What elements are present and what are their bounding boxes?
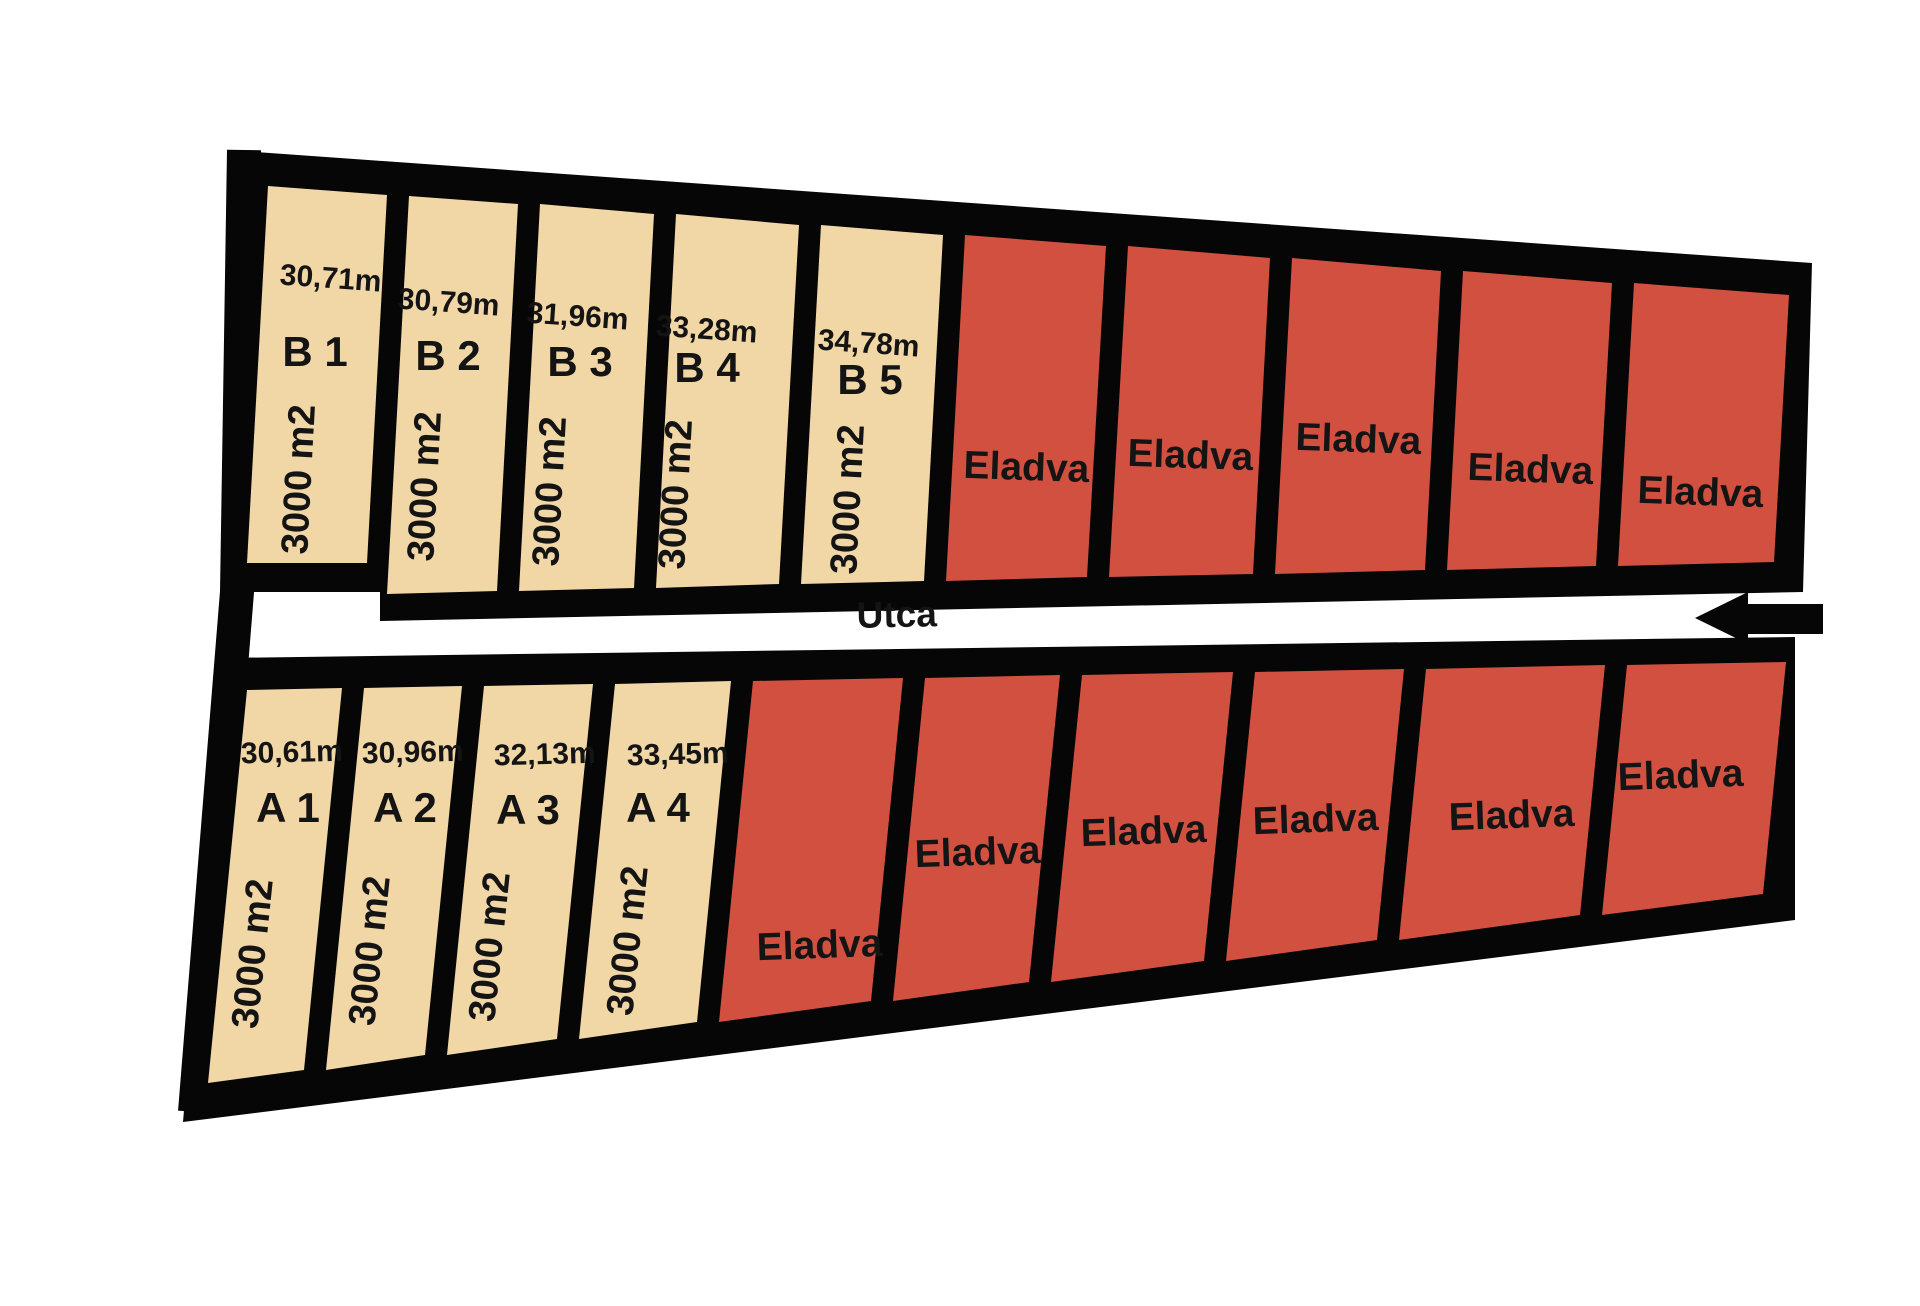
plot-id-label: B 3 xyxy=(547,338,612,385)
plot-width-label: 33,45m xyxy=(626,737,729,773)
street-label: Utca xyxy=(856,593,937,636)
sold-plot-sold-b-4 xyxy=(1447,271,1612,570)
plot-sold-label: Eladva xyxy=(1617,752,1744,799)
plot-area-label: 3000 m2 xyxy=(651,418,701,570)
plot-id-label: B 5 xyxy=(837,356,902,403)
plot-sold-label: Eladva xyxy=(914,829,1041,876)
plot-sold-label: Eladva xyxy=(1637,469,1764,516)
plot-id-label: B 1 xyxy=(282,328,347,375)
plot-sold-label: Eladva xyxy=(963,444,1090,491)
plot-id-label: B 2 xyxy=(415,332,480,379)
plot-area-label: 3000 m2 xyxy=(274,403,324,555)
plot-id-label: A 4 xyxy=(626,784,690,831)
plot-sold-label: Eladva xyxy=(1080,808,1207,855)
plot-sold-label: Eladva xyxy=(1295,416,1422,463)
plot-area-label: 3000 m2 xyxy=(400,410,450,562)
left-arrow-icon xyxy=(1695,592,1823,644)
plot-id-label: A 3 xyxy=(496,786,560,833)
plot-area-label: 3000 m2 xyxy=(525,415,575,567)
plot-id-label: A 2 xyxy=(373,784,437,831)
sold-plot-sold-b-5 xyxy=(1618,283,1789,566)
plot-width-label: 32,13m xyxy=(493,737,596,773)
plot-width-label: 30,96m xyxy=(361,735,464,771)
plot-sold-label: Eladva xyxy=(1252,796,1379,843)
plot-sold-label: Eladva xyxy=(1448,792,1575,839)
land-plot-map: 30,71mB 13000 m230,79mB 23000 m231,96mB … xyxy=(0,0,1920,1306)
plot-sold-label: Eladva xyxy=(1127,432,1254,479)
plot-area-label: 3000 m2 xyxy=(823,423,873,575)
plot-width-label: 30,61m xyxy=(240,735,343,771)
plot-b5 xyxy=(801,225,943,584)
plot-id-label: A 1 xyxy=(256,784,320,831)
plot-sold-label: Eladva xyxy=(1467,446,1594,493)
plot-map-page: 30,71mB 13000 m230,79mB 23000 m231,96mB … xyxy=(0,0,1920,1306)
sold-plot-sold-b-1 xyxy=(946,235,1106,581)
plot-id-label: B 4 xyxy=(674,344,740,391)
sold-plot-sold-b-2 xyxy=(1109,246,1270,577)
plot-sold-label: Eladva xyxy=(756,922,883,969)
